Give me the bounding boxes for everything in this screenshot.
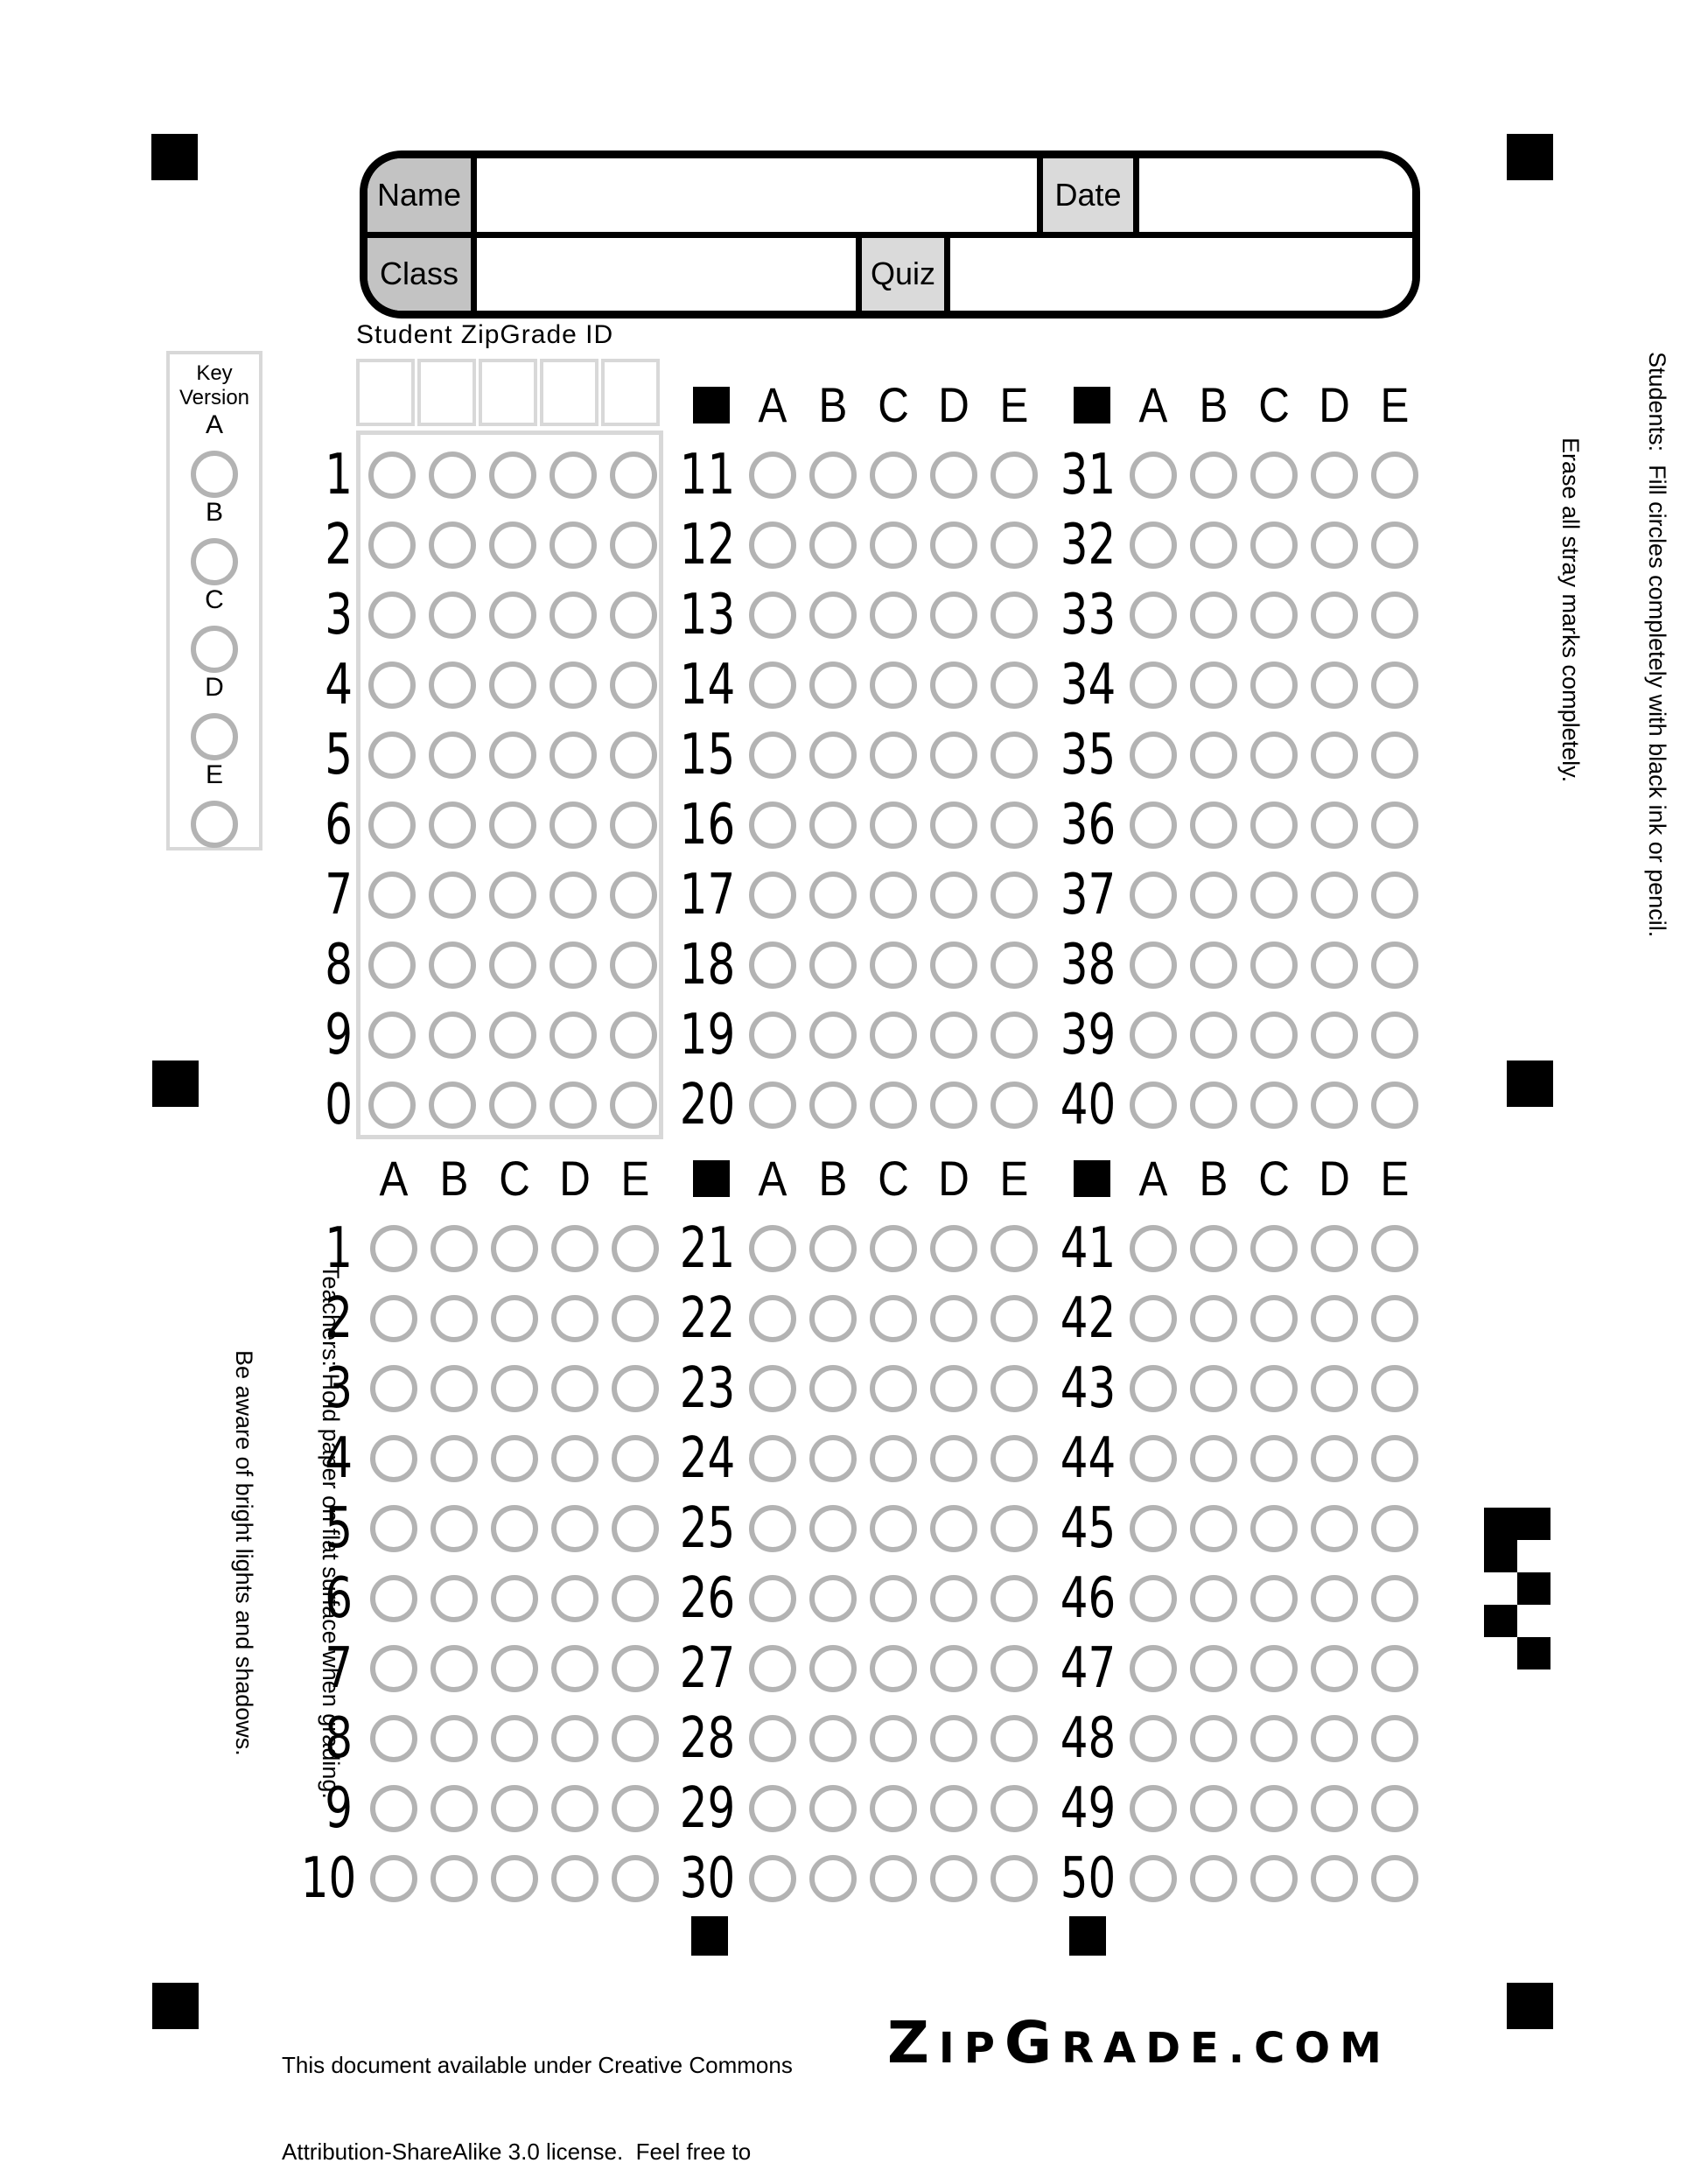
bubble-q19-B[interactable] (809, 1011, 857, 1059)
bubble-q31-C[interactable] (1250, 451, 1298, 499)
bubble-q13-C[interactable] (870, 591, 917, 639)
bubble-q43-B[interactable] (1190, 1365, 1237, 1412)
bubble-q10-D[interactable] (551, 1855, 598, 1902)
bubble-q15-D[interactable] (930, 731, 977, 779)
id-bubble-digit5-col4[interactable] (549, 731, 597, 779)
bubble-q38-D[interactable] (1311, 941, 1358, 989)
bubble-q17-B[interactable] (809, 871, 857, 919)
bubble-q47-E[interactable] (1371, 1645, 1418, 1692)
id-digit-box-5[interactable] (601, 359, 660, 426)
id-bubble-digit3-col3[interactable] (489, 591, 536, 639)
bubble-q42-D[interactable] (1311, 1295, 1358, 1342)
bubble-q39-E[interactable] (1371, 1011, 1418, 1059)
bubble-q5-B[interactable] (430, 1505, 478, 1552)
id-bubble-digit7-col5[interactable] (610, 871, 657, 919)
id-digit-box-4[interactable] (540, 359, 598, 426)
bubble-q28-B[interactable] (809, 1715, 857, 1762)
bubble-q41-E[interactable] (1371, 1225, 1418, 1272)
id-bubble-digit2-col1[interactable] (368, 521, 416, 569)
bubble-q37-C[interactable] (1250, 871, 1298, 919)
id-digit-box-3[interactable] (479, 359, 537, 426)
bubble-q12-D[interactable] (930, 521, 977, 569)
bubble-q6-D[interactable] (551, 1575, 598, 1622)
bubble-q35-D[interactable] (1311, 731, 1358, 779)
bubble-q49-A[interactable] (1130, 1785, 1177, 1832)
bubble-q20-D[interactable] (930, 1081, 977, 1129)
bubble-q4-D[interactable] (551, 1435, 598, 1482)
bubble-q8-C[interactable] (491, 1715, 538, 1762)
bubble-q47-C[interactable] (1250, 1645, 1298, 1692)
id-bubble-digit1-col5[interactable] (610, 451, 657, 499)
bubble-q50-C[interactable] (1250, 1855, 1298, 1902)
key-version-bubble-E[interactable] (191, 801, 238, 848)
bubble-q37-E[interactable] (1371, 871, 1418, 919)
id-bubble-digit3-col1[interactable] (368, 591, 416, 639)
bubble-q6-E[interactable] (612, 1575, 659, 1622)
key-version-bubble-B[interactable] (191, 538, 238, 585)
bubble-q34-C[interactable] (1250, 661, 1298, 709)
bubble-q43-D[interactable] (1311, 1365, 1358, 1412)
bubble-q44-E[interactable] (1371, 1435, 1418, 1482)
bubble-q11-C[interactable] (870, 451, 917, 499)
bubble-q28-C[interactable] (870, 1715, 917, 1762)
bubble-q29-C[interactable] (870, 1785, 917, 1832)
bubble-q11-B[interactable] (809, 451, 857, 499)
bubble-q19-A[interactable] (749, 1011, 796, 1059)
bubble-q40-B[interactable] (1190, 1081, 1237, 1129)
bubble-q10-A[interactable] (370, 1855, 417, 1902)
bubble-q8-B[interactable] (430, 1715, 478, 1762)
bubble-q25-D[interactable] (930, 1505, 977, 1552)
bubble-q36-C[interactable] (1250, 801, 1298, 849)
bubble-q7-B[interactable] (430, 1645, 478, 1692)
id-bubble-digit4-col5[interactable] (610, 661, 657, 709)
bubble-q25-A[interactable] (749, 1505, 796, 1552)
bubble-q45-A[interactable] (1130, 1505, 1177, 1552)
bubble-q1-C[interactable] (491, 1225, 538, 1272)
name-input[interactable] (477, 158, 1037, 232)
bubble-q45-B[interactable] (1190, 1505, 1237, 1552)
bubble-q29-E[interactable] (990, 1785, 1038, 1832)
bubble-q30-A[interactable] (749, 1855, 796, 1902)
bubble-q2-D[interactable] (551, 1295, 598, 1342)
bubble-q29-B[interactable] (809, 1785, 857, 1832)
bubble-q25-E[interactable] (990, 1505, 1038, 1552)
bubble-q26-A[interactable] (749, 1575, 796, 1622)
bubble-q5-D[interactable] (551, 1505, 598, 1552)
bubble-q41-C[interactable] (1250, 1225, 1298, 1272)
bubble-q48-E[interactable] (1371, 1715, 1418, 1762)
bubble-q44-D[interactable] (1311, 1435, 1358, 1482)
bubble-q25-B[interactable] (809, 1505, 857, 1552)
bubble-q20-E[interactable] (990, 1081, 1038, 1129)
bubble-q2-C[interactable] (491, 1295, 538, 1342)
id-bubble-digit9-col5[interactable] (610, 1011, 657, 1059)
bubble-q43-C[interactable] (1250, 1365, 1298, 1412)
bubble-q36-D[interactable] (1311, 801, 1358, 849)
bubble-q18-E[interactable] (990, 941, 1038, 989)
id-bubble-digit8-col2[interactable] (429, 941, 476, 989)
key-version-bubble-D[interactable] (191, 713, 238, 760)
id-bubble-digit0-col2[interactable] (429, 1081, 476, 1129)
bubble-q31-E[interactable] (1371, 451, 1418, 499)
bubble-q24-B[interactable] (809, 1435, 857, 1482)
bubble-q12-B[interactable] (809, 521, 857, 569)
bubble-q28-D[interactable] (930, 1715, 977, 1762)
bubble-q33-D[interactable] (1311, 591, 1358, 639)
bubble-q22-D[interactable] (930, 1295, 977, 1342)
bubble-q42-E[interactable] (1371, 1295, 1418, 1342)
bubble-q19-E[interactable] (990, 1011, 1038, 1059)
bubble-q38-B[interactable] (1190, 941, 1237, 989)
bubble-q32-B[interactable] (1190, 521, 1237, 569)
id-bubble-digit9-col4[interactable] (549, 1011, 597, 1059)
id-bubble-digit1-col1[interactable] (368, 451, 416, 499)
bubble-q37-D[interactable] (1311, 871, 1358, 919)
bubble-q46-D[interactable] (1311, 1575, 1358, 1622)
bubble-q44-C[interactable] (1250, 1435, 1298, 1482)
bubble-q13-B[interactable] (809, 591, 857, 639)
id-bubble-digit8-col3[interactable] (489, 941, 536, 989)
id-bubble-digit0-col4[interactable] (549, 1081, 597, 1129)
bubble-q20-B[interactable] (809, 1081, 857, 1129)
bubble-q46-B[interactable] (1190, 1575, 1237, 1622)
bubble-q34-A[interactable] (1130, 661, 1177, 709)
bubble-q23-A[interactable] (749, 1365, 796, 1412)
bubble-q24-E[interactable] (990, 1435, 1038, 1482)
bubble-q10-B[interactable] (430, 1855, 478, 1902)
bubble-q33-B[interactable] (1190, 591, 1237, 639)
bubble-q17-A[interactable] (749, 871, 796, 919)
bubble-q17-C[interactable] (870, 871, 917, 919)
bubble-q5-E[interactable] (612, 1505, 659, 1552)
id-digit-box-2[interactable] (417, 359, 476, 426)
bubble-q45-C[interactable] (1250, 1505, 1298, 1552)
bubble-q16-A[interactable] (749, 801, 796, 849)
bubble-q40-D[interactable] (1311, 1081, 1358, 1129)
bubble-q3-E[interactable] (612, 1365, 659, 1412)
bubble-q27-A[interactable] (749, 1645, 796, 1692)
bubble-q18-A[interactable] (749, 941, 796, 989)
id-bubble-digit6-col3[interactable] (489, 801, 536, 849)
id-bubble-digit9-col2[interactable] (429, 1011, 476, 1059)
bubble-q28-E[interactable] (990, 1715, 1038, 1762)
bubble-q33-E[interactable] (1371, 591, 1418, 639)
bubble-q19-D[interactable] (930, 1011, 977, 1059)
bubble-q27-E[interactable] (990, 1645, 1038, 1692)
bubble-q24-D[interactable] (930, 1435, 977, 1482)
bubble-q49-E[interactable] (1371, 1785, 1418, 1832)
bubble-q40-E[interactable] (1371, 1081, 1418, 1129)
bubble-q39-A[interactable] (1130, 1011, 1177, 1059)
bubble-q3-D[interactable] (551, 1365, 598, 1412)
bubble-q14-E[interactable] (990, 661, 1038, 709)
bubble-q11-A[interactable] (749, 451, 796, 499)
bubble-q22-E[interactable] (990, 1295, 1038, 1342)
bubble-q18-B[interactable] (809, 941, 857, 989)
bubble-q35-A[interactable] (1130, 731, 1177, 779)
bubble-q11-D[interactable] (930, 451, 977, 499)
bubble-q21-B[interactable] (809, 1225, 857, 1272)
bubble-q14-C[interactable] (870, 661, 917, 709)
bubble-q26-B[interactable] (809, 1575, 857, 1622)
bubble-q8-E[interactable] (612, 1715, 659, 1762)
bubble-q42-C[interactable] (1250, 1295, 1298, 1342)
bubble-q13-D[interactable] (930, 591, 977, 639)
bubble-q30-D[interactable] (930, 1855, 977, 1902)
bubble-q40-C[interactable] (1250, 1081, 1298, 1129)
bubble-q35-B[interactable] (1190, 731, 1237, 779)
bubble-q41-A[interactable] (1130, 1225, 1177, 1272)
bubble-q43-E[interactable] (1371, 1365, 1418, 1412)
id-bubble-digit0-col1[interactable] (368, 1081, 416, 1129)
bubble-q50-B[interactable] (1190, 1855, 1237, 1902)
bubble-q46-C[interactable] (1250, 1575, 1298, 1622)
bubble-q22-C[interactable] (870, 1295, 917, 1342)
bubble-q37-A[interactable] (1130, 871, 1177, 919)
bubble-q15-C[interactable] (870, 731, 917, 779)
id-bubble-digit2-col2[interactable] (429, 521, 476, 569)
id-bubble-digit0-col5[interactable] (610, 1081, 657, 1129)
id-bubble-digit6-col1[interactable] (368, 801, 416, 849)
bubble-q35-C[interactable] (1250, 731, 1298, 779)
bubble-q30-E[interactable] (990, 1855, 1038, 1902)
id-bubble-digit3-col5[interactable] (610, 591, 657, 639)
bubble-q45-D[interactable] (1311, 1505, 1358, 1552)
bubble-q36-B[interactable] (1190, 801, 1237, 849)
bubble-q7-C[interactable] (491, 1645, 538, 1692)
id-bubble-digit5-col1[interactable] (368, 731, 416, 779)
bubble-q2-E[interactable] (612, 1295, 659, 1342)
bubble-q2-B[interactable] (430, 1295, 478, 1342)
bubble-q32-D[interactable] (1311, 521, 1358, 569)
bubble-q38-C[interactable] (1250, 941, 1298, 989)
bubble-q31-A[interactable] (1130, 451, 1177, 499)
bubble-q42-B[interactable] (1190, 1295, 1237, 1342)
id-bubble-digit2-col4[interactable] (549, 521, 597, 569)
bubble-q45-E[interactable] (1371, 1505, 1418, 1552)
bubble-q10-E[interactable] (612, 1855, 659, 1902)
id-bubble-digit7-col4[interactable] (549, 871, 597, 919)
bubble-q46-A[interactable] (1130, 1575, 1177, 1622)
bubble-q32-A[interactable] (1130, 521, 1177, 569)
id-bubble-digit2-col3[interactable] (489, 521, 536, 569)
bubble-q14-B[interactable] (809, 661, 857, 709)
bubble-q47-A[interactable] (1130, 1645, 1177, 1692)
bubble-q21-E[interactable] (990, 1225, 1038, 1272)
bubble-q47-B[interactable] (1190, 1645, 1237, 1692)
bubble-q33-A[interactable] (1130, 591, 1177, 639)
bubble-q1-E[interactable] (612, 1225, 659, 1272)
id-bubble-digit4-col4[interactable] (549, 661, 597, 709)
bubble-q26-C[interactable] (870, 1575, 917, 1622)
bubble-q49-D[interactable] (1311, 1785, 1358, 1832)
bubble-q11-E[interactable] (990, 451, 1038, 499)
id-bubble-digit4-col1[interactable] (368, 661, 416, 709)
bubble-q7-D[interactable] (551, 1645, 598, 1692)
bubble-q3-B[interactable] (430, 1365, 478, 1412)
bubble-q36-A[interactable] (1130, 801, 1177, 849)
bubble-q16-D[interactable] (930, 801, 977, 849)
bubble-q14-D[interactable] (930, 661, 977, 709)
bubble-q40-A[interactable] (1130, 1081, 1177, 1129)
bubble-q36-E[interactable] (1371, 801, 1418, 849)
bubble-q38-E[interactable] (1371, 941, 1418, 989)
bubble-q49-B[interactable] (1190, 1785, 1237, 1832)
id-bubble-digit5-col5[interactable] (610, 731, 657, 779)
bubble-q27-C[interactable] (870, 1645, 917, 1692)
bubble-q33-C[interactable] (1250, 591, 1298, 639)
bubble-q31-D[interactable] (1311, 451, 1358, 499)
key-version-bubble-A[interactable] (191, 451, 238, 498)
id-bubble-digit9-col3[interactable] (489, 1011, 536, 1059)
bubble-q8-D[interactable] (551, 1715, 598, 1762)
bubble-q48-D[interactable] (1311, 1715, 1358, 1762)
bubble-q38-A[interactable] (1130, 941, 1177, 989)
bubble-q22-A[interactable] (749, 1295, 796, 1342)
bubble-q48-A[interactable] (1130, 1715, 1177, 1762)
bubble-q34-B[interactable] (1190, 661, 1237, 709)
id-bubble-digit6-col4[interactable] (549, 801, 597, 849)
bubble-q41-D[interactable] (1311, 1225, 1358, 1272)
bubble-q34-E[interactable] (1371, 661, 1418, 709)
bubble-q50-D[interactable] (1311, 1855, 1358, 1902)
bubble-q23-D[interactable] (930, 1365, 977, 1412)
bubble-q9-C[interactable] (491, 1785, 538, 1832)
id-digit-box-1[interactable] (356, 359, 415, 426)
bubble-q48-C[interactable] (1250, 1715, 1298, 1762)
bubble-q42-A[interactable] (1130, 1295, 1177, 1342)
id-bubble-digit1-col4[interactable] (549, 451, 597, 499)
bubble-q49-C[interactable] (1250, 1785, 1298, 1832)
class-input[interactable] (477, 238, 856, 311)
bubble-q31-B[interactable] (1190, 451, 1237, 499)
bubble-q14-A[interactable] (749, 661, 796, 709)
bubble-q27-B[interactable] (809, 1645, 857, 1692)
bubble-q41-B[interactable] (1190, 1225, 1237, 1272)
bubble-q18-D[interactable] (930, 941, 977, 989)
id-bubble-digit6-col2[interactable] (429, 801, 476, 849)
id-bubble-digit3-col4[interactable] (549, 591, 597, 639)
bubble-q17-D[interactable] (930, 871, 977, 919)
bubble-q1-D[interactable] (551, 1225, 598, 1272)
bubble-q44-A[interactable] (1130, 1435, 1177, 1482)
id-bubble-digit4-col3[interactable] (489, 661, 536, 709)
bubble-q24-C[interactable] (870, 1435, 917, 1482)
bubble-q15-A[interactable] (749, 731, 796, 779)
bubble-q35-E[interactable] (1371, 731, 1418, 779)
bubble-q13-E[interactable] (990, 591, 1038, 639)
bubble-q12-C[interactable] (870, 521, 917, 569)
bubble-q18-C[interactable] (870, 941, 917, 989)
bubble-q32-C[interactable] (1250, 521, 1298, 569)
id-bubble-digit9-col1[interactable] (368, 1011, 416, 1059)
key-version-bubble-C[interactable] (191, 626, 238, 673)
bubble-q37-B[interactable] (1190, 871, 1237, 919)
bubble-q23-B[interactable] (809, 1365, 857, 1412)
bubble-q4-B[interactable] (430, 1435, 478, 1482)
id-bubble-digit2-col5[interactable] (610, 521, 657, 569)
id-bubble-digit1-col3[interactable] (489, 451, 536, 499)
bubble-q5-C[interactable] (491, 1505, 538, 1552)
bubble-q9-E[interactable] (612, 1785, 659, 1832)
id-bubble-digit4-col2[interactable] (429, 661, 476, 709)
id-bubble-digit1-col2[interactable] (429, 451, 476, 499)
bubble-q9-D[interactable] (551, 1785, 598, 1832)
bubble-q32-E[interactable] (1371, 521, 1418, 569)
bubble-q12-E[interactable] (990, 521, 1038, 569)
bubble-q50-A[interactable] (1130, 1855, 1177, 1902)
bubble-q16-C[interactable] (870, 801, 917, 849)
bubble-q13-A[interactable] (749, 591, 796, 639)
bubble-q23-E[interactable] (990, 1365, 1038, 1412)
bubble-q39-D[interactable] (1311, 1011, 1358, 1059)
bubble-q29-D[interactable] (930, 1785, 977, 1832)
id-bubble-digit3-col2[interactable] (429, 591, 476, 639)
bubble-q1-B[interactable] (430, 1225, 478, 1272)
bubble-q9-B[interactable] (430, 1785, 478, 1832)
bubble-q6-B[interactable] (430, 1575, 478, 1622)
id-bubble-digit5-col3[interactable] (489, 731, 536, 779)
bubble-q47-D[interactable] (1311, 1645, 1358, 1692)
bubble-q23-C[interactable] (870, 1365, 917, 1412)
bubble-q12-A[interactable] (749, 521, 796, 569)
bubble-q24-A[interactable] (749, 1435, 796, 1482)
bubble-q20-A[interactable] (749, 1081, 796, 1129)
bubble-q39-B[interactable] (1190, 1011, 1237, 1059)
id-bubble-digit6-col5[interactable] (610, 801, 657, 849)
id-bubble-digit5-col2[interactable] (429, 731, 476, 779)
id-bubble-digit8-col4[interactable] (549, 941, 597, 989)
id-bubble-digit7-col3[interactable] (489, 871, 536, 919)
bubble-q27-D[interactable] (930, 1645, 977, 1692)
bubble-q3-C[interactable] (491, 1365, 538, 1412)
bubble-q4-C[interactable] (491, 1435, 538, 1482)
id-bubble-digit0-col3[interactable] (489, 1081, 536, 1129)
bubble-q25-C[interactable] (870, 1505, 917, 1552)
bubble-q20-C[interactable] (870, 1081, 917, 1129)
bubble-q6-C[interactable] (491, 1575, 538, 1622)
bubble-q15-B[interactable] (809, 731, 857, 779)
bubble-q22-B[interactable] (809, 1295, 857, 1342)
bubble-q48-B[interactable] (1190, 1715, 1237, 1762)
bubble-q4-E[interactable] (612, 1435, 659, 1482)
bubble-q43-A[interactable] (1130, 1365, 1177, 1412)
bubble-q46-E[interactable] (1371, 1575, 1418, 1622)
bubble-q26-D[interactable] (930, 1575, 977, 1622)
id-bubble-digit7-col1[interactable] (368, 871, 416, 919)
bubble-q16-B[interactable] (809, 801, 857, 849)
bubble-q50-E[interactable] (1371, 1855, 1418, 1902)
bubble-q10-C[interactable] (491, 1855, 538, 1902)
bubble-q7-E[interactable] (612, 1645, 659, 1692)
bubble-q21-C[interactable] (870, 1225, 917, 1272)
bubble-q30-B[interactable] (809, 1855, 857, 1902)
id-bubble-digit8-col5[interactable] (610, 941, 657, 989)
bubble-q28-A[interactable] (749, 1715, 796, 1762)
bubble-q44-B[interactable] (1190, 1435, 1237, 1482)
bubble-q16-E[interactable] (990, 801, 1038, 849)
quiz-input[interactable] (950, 238, 1412, 311)
bubble-q30-C[interactable] (870, 1855, 917, 1902)
bubble-q15-E[interactable] (990, 731, 1038, 779)
id-bubble-digit7-col2[interactable] (429, 871, 476, 919)
bubble-q21-A[interactable] (749, 1225, 796, 1272)
date-input[interactable] (1139, 158, 1412, 232)
bubble-q21-D[interactable] (930, 1225, 977, 1272)
bubble-q29-A[interactable] (749, 1785, 796, 1832)
bubble-q19-C[interactable] (870, 1011, 917, 1059)
